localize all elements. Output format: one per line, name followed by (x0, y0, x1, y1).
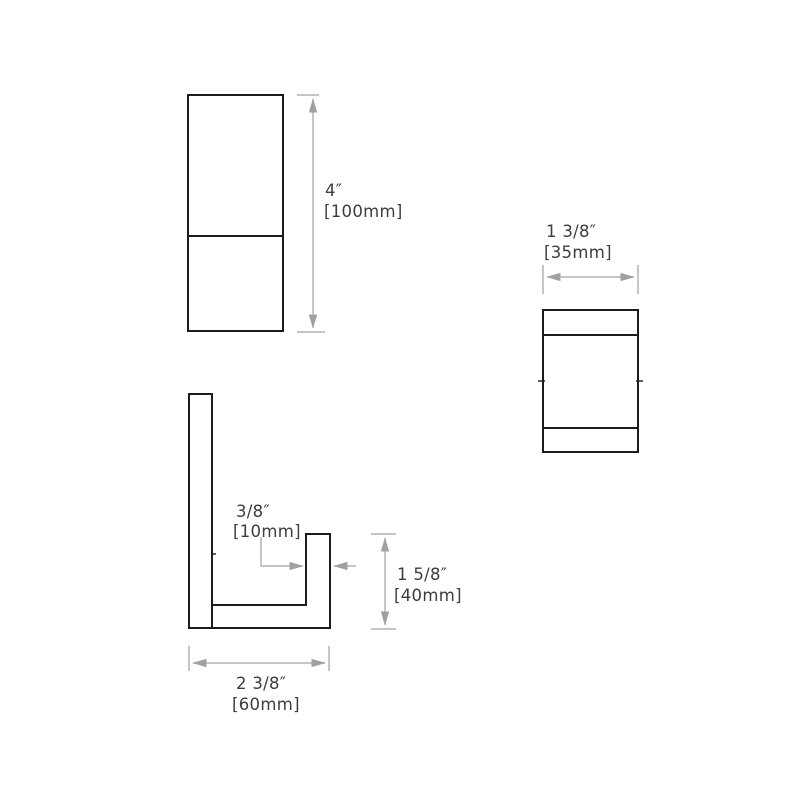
height-label-inches: 4″ (325, 181, 342, 200)
hook-technical-drawing: 4″ [100mm] 1 3/8″ [35mm] (0, 0, 800, 800)
width-label-inches: 1 3/8″ (546, 222, 596, 241)
drawing-svg: 4″ [100mm] 1 3/8″ [35mm] (0, 0, 800, 800)
lip-height-dimension: 1 5/8″ [40mm] (371, 534, 462, 629)
lip-height-label-mm: [40mm] (394, 586, 462, 605)
height-label-mm: [100mm] (324, 202, 403, 221)
lip-thickness-dimension: 3/8″ [10mm] (233, 502, 356, 566)
front-view-outline (188, 95, 283, 331)
lip-height-label-inches: 1 5/8″ (397, 565, 447, 584)
depth-label-inches: 2 3/8″ (236, 674, 286, 693)
front-view (188, 95, 283, 331)
lip-thickness-label-mm: [10mm] (233, 522, 301, 541)
top-view-outline (543, 310, 638, 452)
top-view (538, 310, 643, 452)
depth-label-mm: [60mm] (232, 695, 300, 714)
width-dimension: 1 3/8″ [35mm] (543, 222, 638, 294)
height-dimension: 4″ [100mm] (297, 95, 403, 332)
side-profile-backplate (189, 394, 212, 628)
width-label-mm: [35mm] (544, 243, 612, 262)
lip-thickness-leader-arrow (261, 537, 303, 566)
lip-thickness-label-inches: 3/8″ (236, 502, 270, 521)
depth-dimension: 2 3/8″ [60mm] (189, 646, 329, 714)
